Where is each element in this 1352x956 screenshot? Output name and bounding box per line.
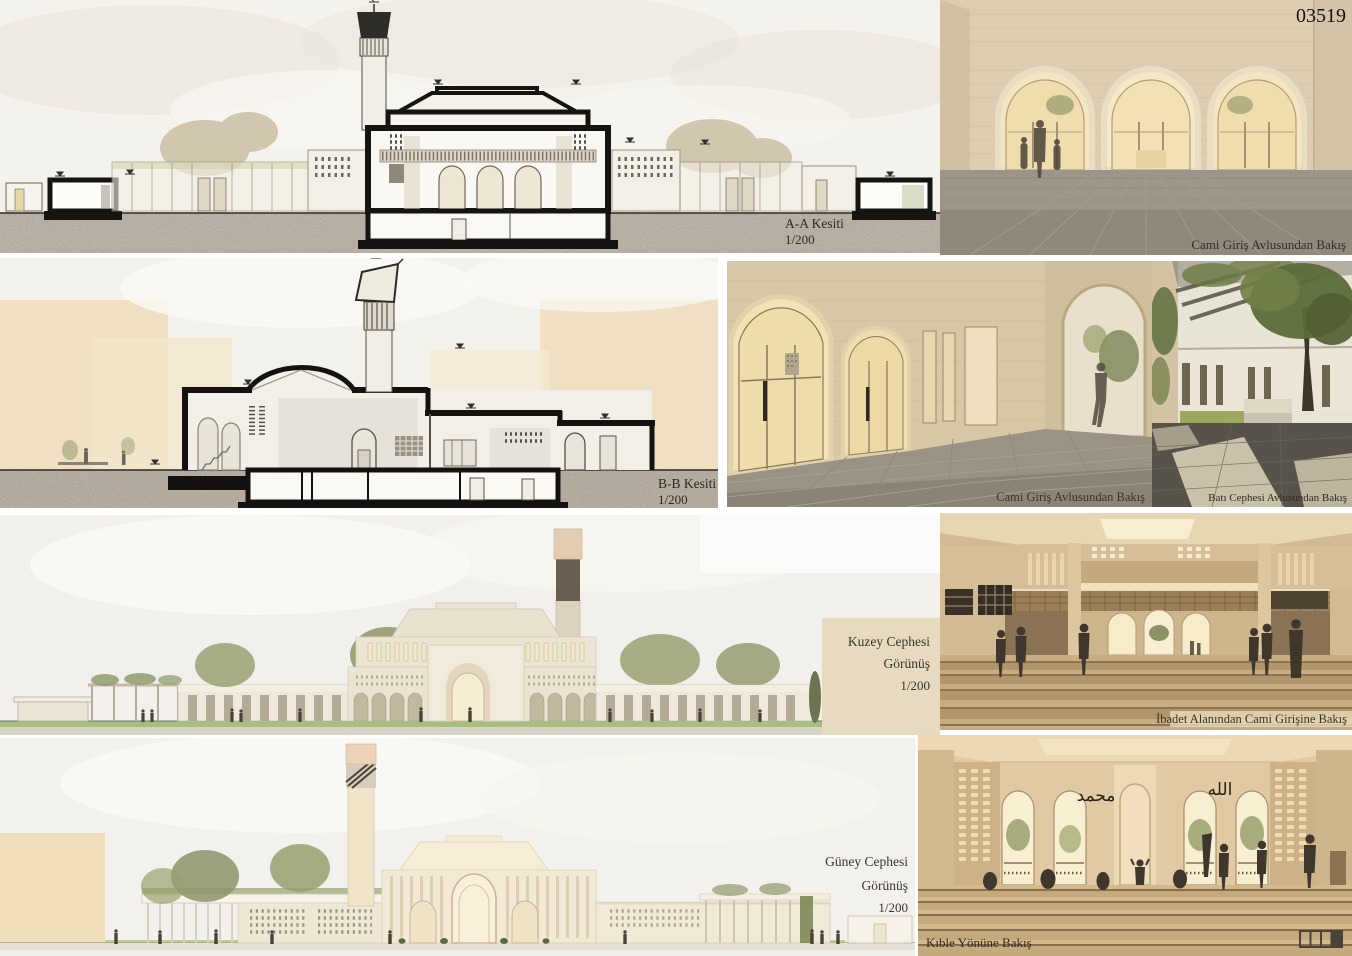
- render-entry-courtyard-top: 03519 Cami Giriş Avlusundan Bakış: [940, 0, 1352, 255]
- caption-prayer-hall: İbadet Alanından Cami Girişine Bakış: [1156, 712, 1347, 726]
- sheet-indicator-active-cell: [1332, 931, 1343, 947]
- arch-center: [1104, 69, 1198, 170]
- ceiling-tray: [918, 735, 1352, 762]
- section-bb-panel: B-B Kesiti 1/200: [0, 258, 718, 508]
- label-elevation-north-scale: 1/200: [900, 678, 930, 693]
- label-elevation-north-subtitle: Görünüş: [884, 656, 931, 671]
- left-wing: [178, 685, 348, 721]
- section-aa-drawing: A-A Kesiti 1/200: [0, 0, 940, 253]
- mezzanine-lattice: [1005, 590, 1330, 611]
- kiosk: [14, 697, 92, 721]
- right-glazed-wing: [680, 162, 802, 211]
- caption-entry-courtyard-mid: Cami Giriş Avlusundan Bakış: [996, 490, 1145, 504]
- render-entry-courtyard-mid-panel: Cami Giriş Avlusundan Bakış: [727, 261, 1152, 507]
- section-bb-drawing: B-B Kesiti 1/200: [0, 258, 718, 508]
- render-qibla-view: محمد الله: [918, 735, 1352, 956]
- mosque-section-cut: [358, 88, 618, 249]
- right-passage: [1045, 261, 1152, 439]
- minaret: [346, 744, 376, 906]
- right-low-block: [802, 166, 856, 211]
- clerestory-band: [940, 545, 1352, 589]
- elevation-south-drawing: Güney Cephesi Görünüş 1/200: [0, 738, 915, 956]
- ceiling: [940, 513, 1352, 545]
- label-section-aa-scale: 1/200: [785, 232, 815, 247]
- arch-right: [1210, 69, 1304, 170]
- elevation-south-panel: Güney Cephesi Görünüş 1/200: [0, 738, 915, 956]
- right-window-block: [612, 150, 680, 211]
- label-elevation-south-subtitle: Görünüş: [862, 878, 909, 893]
- label-section-bb-title: B-B Kesiti: [658, 476, 716, 491]
- render-west-courtyard: Batı Cephesi Avlusundan Bakış: [1152, 261, 1352, 507]
- caption-entry-courtyard-top: Cami Giriş Avlusundan Bakış: [1191, 237, 1346, 252]
- render-west-courtyard-panel: Batı Cephesi Avlusundan Bakış: [1152, 261, 1352, 507]
- label-card: Kuzey Cephesi Görünüş 1/200: [822, 618, 940, 735]
- render-prayer-hall-panel: İbadet Alanından Cami Girişine Bakış: [940, 513, 1352, 730]
- left-small-building: [6, 183, 42, 211]
- render-prayer-hall: İbadet Alanından Cami Girişine Bakış: [940, 513, 1352, 730]
- mihrab-niche: [1120, 784, 1150, 885]
- right-small-building: [848, 916, 912, 943]
- caption-west-courtyard: Batı Cephesi Avlusundan Bakış: [1208, 492, 1347, 504]
- right-annex-section: [852, 180, 936, 220]
- board-number: 03519: [1296, 5, 1346, 27]
- ground: [0, 721, 940, 735]
- label-elevation-south-title: Güney Cephesi: [825, 854, 908, 869]
- arch-left-small: [843, 328, 909, 457]
- label-section-bb-scale: 1/200: [658, 492, 688, 507]
- entrance-arches: [1108, 610, 1210, 655]
- render-entry-courtyard-top-panel: 03519 Cami Giriş Avlusundan Bakış: [940, 0, 1352, 255]
- label-elevation-south-scale: 1/200: [878, 900, 908, 915]
- presentation-board: A-A Kesiti 1/200: [0, 0, 1352, 956]
- left-annex-section: [44, 180, 122, 220]
- calligraphy-allah: الله: [1208, 780, 1233, 800]
- context-block-left: [0, 833, 105, 945]
- left-glazed-wing: [112, 162, 308, 211]
- label-section-aa-title: A-A Kesiti: [785, 216, 844, 231]
- elevation-north-drawing: Kuzey Cephesi Görünüş 1/200: [0, 515, 940, 735]
- caption-strip: İbadet Alanından Cami Girişine Bakış: [1156, 711, 1352, 727]
- arch-left-large: [731, 297, 831, 473]
- left-mid-block: [308, 150, 368, 211]
- calligraphy-muhammad: محمد: [1077, 786, 1116, 806]
- perforated-screen-left: [954, 762, 1000, 885]
- elevation-north-panel: Kuzey Cephesi Görünüş 1/200: [0, 515, 940, 735]
- section-aa-panel: A-A Kesiti 1/200: [0, 0, 940, 253]
- caption-qibla: Kıble Yönüne Bakış: [926, 935, 1032, 950]
- render-entry-courtyard-mid: Cami Giriş Avlusundan Bakış: [727, 261, 1152, 507]
- render-qibla-panel: محمد الله: [918, 735, 1352, 956]
- portico-arches: [439, 166, 541, 211]
- left-wall-windows: [945, 585, 1012, 615]
- label-elevation-north-title: Kuzey Cephesi: [848, 634, 930, 649]
